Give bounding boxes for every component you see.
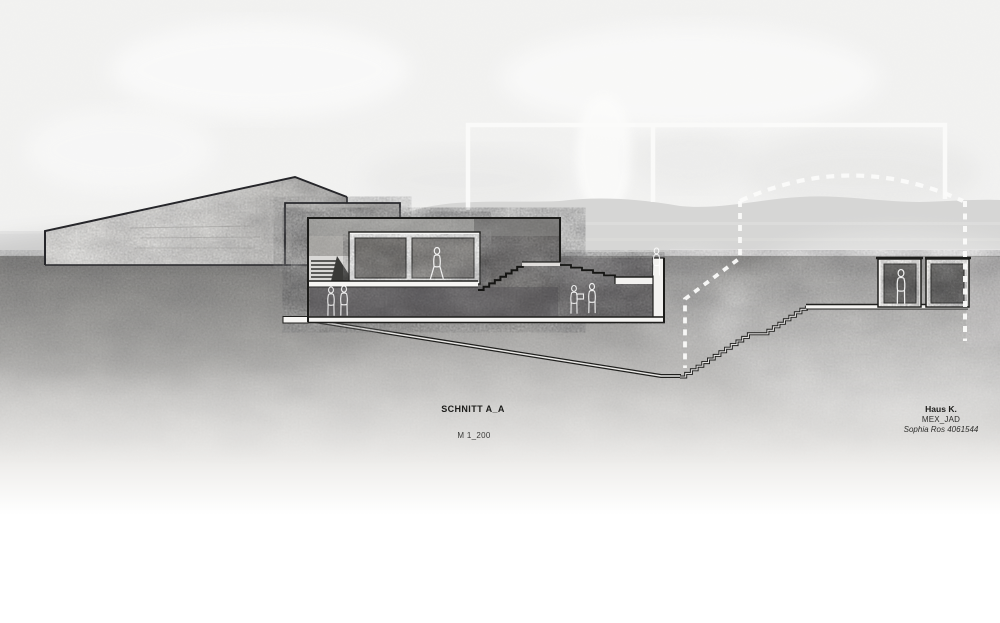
project-code-label: MEX_JAD <box>922 415 960 424</box>
author-label: Sophia Ros 4061544 <box>904 425 979 434</box>
sunken-earth-block <box>560 258 664 318</box>
scale-label: M 1_200 <box>457 431 490 440</box>
interior-stairs-left <box>309 256 352 281</box>
section-drawing-canvas <box>0 0 1000 623</box>
bottom-slab <box>308 317 665 323</box>
pavilion-room-left <box>876 258 923 307</box>
interior-room <box>349 232 480 284</box>
section-title-label: SCHNITT A_A <box>441 404 505 414</box>
architectural-section-drawing: SCHNITT A_A M 1_200 Haus K. MEX_JAD Soph… <box>0 0 1000 623</box>
entry-platform <box>283 317 308 324</box>
project-name-label: Haus K. <box>925 404 957 414</box>
mid-slab <box>308 281 478 287</box>
